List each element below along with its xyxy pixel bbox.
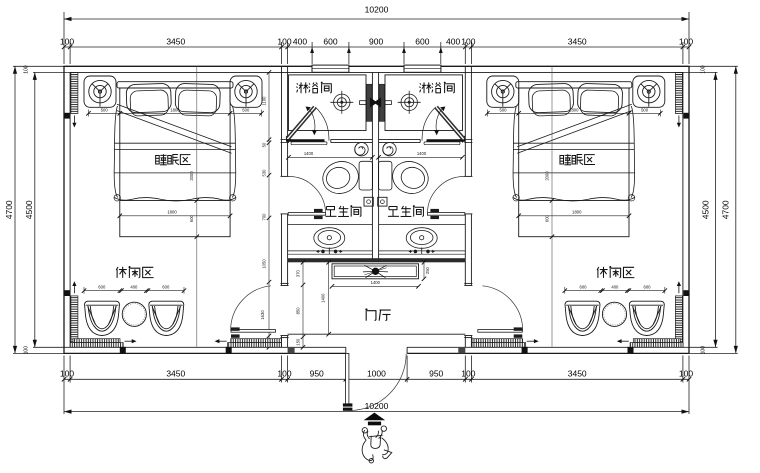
svg-text:1400: 1400 <box>304 151 314 156</box>
svg-text:100: 100 <box>679 37 693 47</box>
svg-text:100: 100 <box>24 346 30 355</box>
svg-text:100: 100 <box>461 37 475 47</box>
svg-text:400: 400 <box>611 284 619 289</box>
svg-text:900: 900 <box>369 37 383 47</box>
svg-text:1800: 1800 <box>167 209 177 214</box>
svg-text:250: 250 <box>425 266 430 274</box>
svg-text:150: 150 <box>296 338 301 346</box>
svg-text:3450: 3450 <box>568 37 587 47</box>
svg-text:600: 600 <box>98 284 106 289</box>
svg-text:100: 100 <box>701 346 707 355</box>
svg-text:1000: 1000 <box>367 368 386 378</box>
svg-text:4500: 4500 <box>701 200 711 219</box>
svg-text:500: 500 <box>242 107 250 112</box>
svg-text:370: 370 <box>296 269 301 277</box>
svg-text:1800: 1800 <box>572 209 582 214</box>
svg-text:500: 500 <box>641 107 649 112</box>
svg-text:600: 600 <box>189 214 194 222</box>
svg-text:100: 100 <box>277 37 291 47</box>
svg-text:100: 100 <box>461 368 475 378</box>
svg-text:3450: 3450 <box>166 37 185 47</box>
svg-text:1400: 1400 <box>320 293 325 303</box>
svg-text:600: 600 <box>545 214 550 222</box>
svg-text:100: 100 <box>679 368 693 378</box>
svg-text:50: 50 <box>262 142 267 147</box>
svg-text:4500: 4500 <box>24 200 34 219</box>
svg-text:600: 600 <box>580 284 588 289</box>
svg-text:2000: 2000 <box>189 171 194 181</box>
svg-text:950: 950 <box>429 368 443 378</box>
svg-text:600: 600 <box>644 284 652 289</box>
svg-text:950: 950 <box>310 368 324 378</box>
svg-text:700: 700 <box>262 213 267 221</box>
svg-text:100: 100 <box>24 65 30 74</box>
svg-text:2000: 2000 <box>545 171 550 181</box>
svg-text:530: 530 <box>262 169 267 177</box>
svg-text:850: 850 <box>296 307 301 315</box>
svg-text:100: 100 <box>277 368 291 378</box>
svg-text:500: 500 <box>101 107 109 112</box>
svg-text:100: 100 <box>60 37 74 47</box>
svg-text:1630: 1630 <box>260 310 265 320</box>
svg-text:100: 100 <box>60 368 74 378</box>
svg-text:400: 400 <box>293 37 307 47</box>
svg-text:500: 500 <box>500 107 508 112</box>
svg-text:1050: 1050 <box>262 259 267 269</box>
svg-text:4700: 4700 <box>721 200 731 219</box>
svg-text:400: 400 <box>446 37 460 47</box>
svg-text:400: 400 <box>130 284 138 289</box>
svg-text:1400: 1400 <box>371 280 381 285</box>
svg-text:1800: 1800 <box>569 107 579 112</box>
svg-text:3450: 3450 <box>166 368 185 378</box>
svg-text:1400: 1400 <box>417 151 427 156</box>
svg-text:10200: 10200 <box>365 401 389 411</box>
svg-text:10200: 10200 <box>365 5 389 15</box>
svg-text:100: 100 <box>701 65 707 74</box>
svg-text:4700: 4700 <box>4 200 14 219</box>
svg-text:600: 600 <box>162 284 170 289</box>
svg-text:1800: 1800 <box>170 107 180 112</box>
svg-text:3450: 3450 <box>568 368 587 378</box>
svg-text:600: 600 <box>415 37 429 47</box>
svg-text:600: 600 <box>323 37 337 47</box>
